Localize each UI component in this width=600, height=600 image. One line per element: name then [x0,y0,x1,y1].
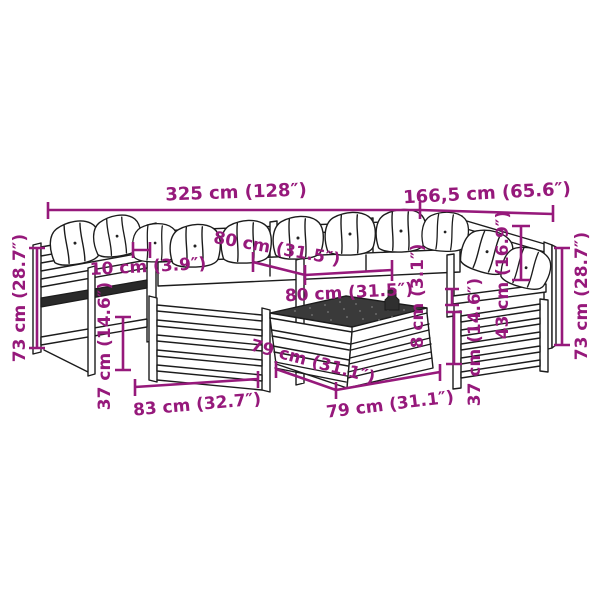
dimension-label: 8 cm (3.1″) [408,244,428,349]
dimension-label: 79 cm (31.1″) [325,387,455,422]
dimension-label: 166,5 cm (65.6″) [403,179,572,209]
dimension-label: 83 cm (32.7″) [132,389,262,420]
mid-post-right-of-table [447,254,454,317]
dimension-label: 43 cm (16.9″) [493,211,513,339]
dimension-label: 37 cm (14.6″) [95,282,115,410]
dimension-diagram: 325 cm (128″) 166,5 cm (65.6″) 80 cm (31… [0,0,600,600]
dimension-label: 73 cm (28.7″) [572,232,592,360]
dimension-labels: 325 cm (128″) 166,5 cm (65.6″) 80 cm (31… [10,179,592,423]
dimension-label: 325 cm (128″) [165,180,307,206]
dimension-label: 37 cm (14.6″) [465,278,485,406]
diagram-canvas: 325 cm (128″) 166,5 cm (65.6″) 80 cm (31… [0,0,600,600]
dimension-label: 73 cm (28.7″) [10,234,30,362]
